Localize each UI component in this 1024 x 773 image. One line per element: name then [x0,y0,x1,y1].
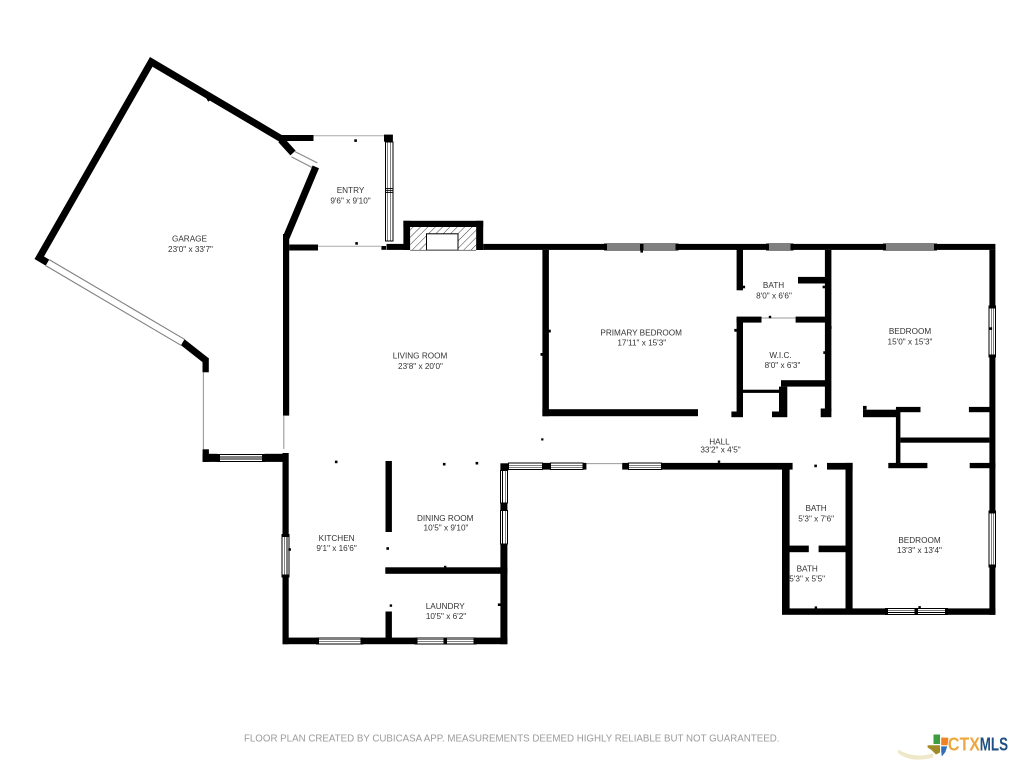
svg-text:W.I.C.: W.I.C. [769,351,791,360]
svg-text:5'3" x 7'6": 5'3" x 7'6" [798,515,834,524]
svg-text:DINING ROOM: DINING ROOM [417,514,474,523]
svg-text:17'11" x 15'3": 17'11" x 15'3" [617,339,666,348]
svg-text:8'0" x 6'3": 8'0" x 6'3" [765,361,801,370]
svg-text:15'0" x 15'3": 15'0" x 15'3" [888,338,933,347]
svg-text:10'5" x 6'2": 10'5" x 6'2" [426,612,466,621]
svg-text:BEDROOM: BEDROOM [889,327,931,336]
svg-text:10'5" x 9'10": 10'5" x 9'10" [424,524,469,533]
svg-text:LIVING ROOM: LIVING ROOM [393,352,448,361]
svg-text:23'8" x 20'0": 23'8" x 20'0" [398,362,443,371]
svg-text:BEDROOM: BEDROOM [898,536,940,545]
svg-text:CTX: CTX [948,734,981,755]
svg-text:BATH: BATH [797,565,818,574]
svg-text:GARAGE: GARAGE [172,235,208,244]
svg-text:BATH: BATH [805,504,826,513]
svg-text:PRIMARY BEDROOM: PRIMARY BEDROOM [600,329,682,338]
svg-text:KITCHEN: KITCHEN [319,534,355,543]
svg-text:BATH: BATH [763,281,784,290]
svg-text:LAUNDRY: LAUNDRY [426,602,466,611]
svg-text:23'0" x 33'7": 23'0" x 33'7" [168,245,213,254]
svg-text:FLOOR PLAN CREATED BY CUBICASA: FLOOR PLAN CREATED BY CUBICASA APP. MEAS… [244,733,780,744]
svg-text:9'6" x 9'10": 9'6" x 9'10" [330,197,370,206]
svg-text:ENTRY: ENTRY [337,186,365,195]
svg-text:9'1" x 16'6": 9'1" x 16'6" [316,544,356,553]
svg-text:13'3" x 13'4": 13'3" x 13'4" [897,546,942,555]
svg-text:MLS: MLS [980,734,1008,755]
svg-text:5'3" x 5'5": 5'3" x 5'5" [789,575,825,584]
svg-text:8'0" x 6'6": 8'0" x 6'6" [756,292,792,301]
svg-text:33'2" x 4'5": 33'2" x 4'5" [700,446,740,455]
